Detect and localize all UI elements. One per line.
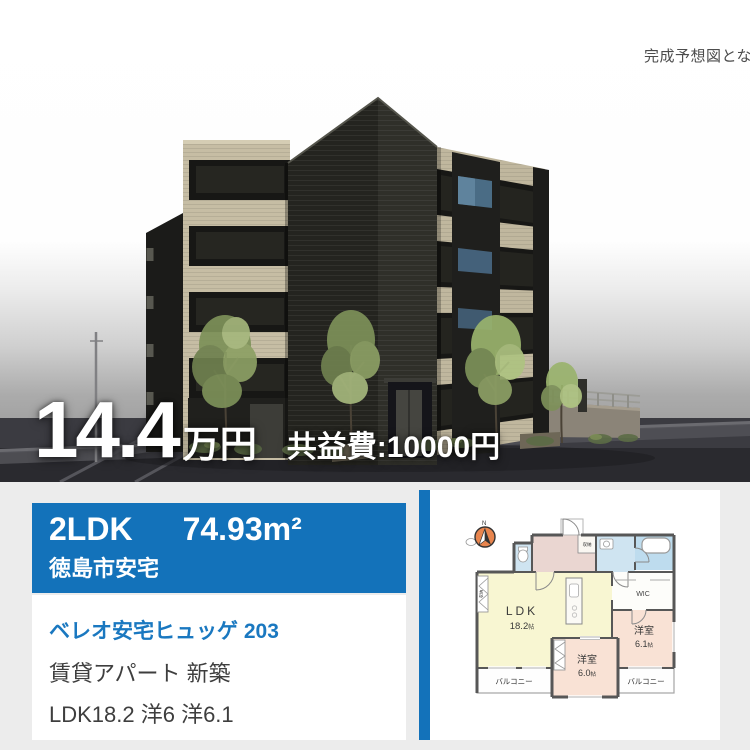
compass-icon: N: [466, 521, 495, 547]
svg-text:洋室: 洋室: [634, 624, 654, 637]
property-info-card: ベレオ安宅ヒュッゲ 203 賃貸アパート 新築 LDK18.2 洋6 洋6.1: [32, 595, 406, 740]
svg-text:WIC: WIC: [636, 591, 650, 598]
floorplan-panel: N: [430, 490, 720, 740]
photo-caption: 完成予想図となり: [644, 45, 750, 66]
price-amount: 14.4: [34, 396, 178, 464]
svg-text:N: N: [482, 521, 486, 527]
svg-text:バルコニー: バルコニー: [627, 677, 664, 686]
layout-label: 2LDK: [49, 512, 133, 547]
listing-card: 完成予想図となり 14.4 万円 共益費:10000円 2LDK 74.93m²…: [0, 0, 750, 750]
svg-text:LDK: LDK: [506, 604, 538, 618]
property-type: 賃貸アパート 新築: [49, 656, 406, 688]
summary-banner: 2LDK 74.93m² 徳島市安宅: [32, 503, 406, 593]
floorplan-image: N: [430, 490, 720, 740]
room-layout: LDK18.2 洋6 洋6.1: [49, 697, 406, 729]
area-label: 74.93m²: [183, 512, 302, 547]
price-overlay: 14.4 万円 共益費:10000円: [34, 396, 500, 468]
svg-text:バルコニー: バルコニー: [495, 677, 532, 686]
property-name: ベレオ安宅ヒュッゲ 203: [49, 615, 406, 645]
property-photo: 完成予想図となり 14.4 万円 共益費:10000円: [0, 0, 750, 482]
svg-text:収納: 収納: [478, 590, 485, 598]
svg-text:収納: 収納: [583, 541, 592, 548]
common-fee: 共益費:10000円: [287, 422, 500, 466]
svg-text:洋室: 洋室: [577, 653, 597, 666]
layout-area-line: 2LDK 74.93m²: [49, 512, 406, 547]
price-unit: 万円: [183, 414, 257, 468]
accent-stripe: [419, 490, 430, 740]
location-label: 徳島市安宅: [49, 551, 406, 583]
